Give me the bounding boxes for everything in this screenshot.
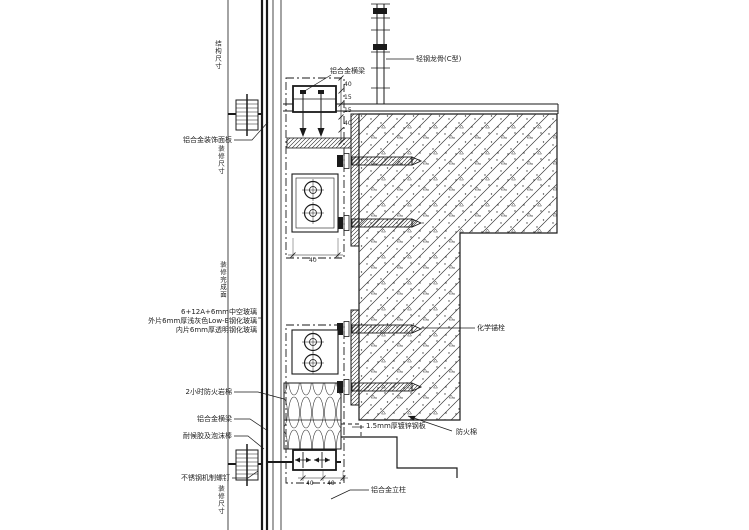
bottom-transom-bracket	[266, 450, 348, 481]
dim-top-2: 15	[344, 94, 352, 101]
steel-stud-channel	[371, 4, 390, 104]
label-mullion: 铝合金立柱	[371, 486, 406, 494]
dim-bottom-2: 40	[327, 480, 335, 487]
label-steel-stud: 轻钢龙骨(C型)	[416, 55, 461, 63]
label-fire-cotton: 防火棉	[456, 428, 477, 436]
label-ref-finish-dim-2: 装修尺寸	[216, 485, 223, 515]
rock-wool-insulation	[284, 383, 341, 449]
label-transom-bottom: 铝合金横梁	[197, 415, 232, 423]
galvanized-sheet-closure	[341, 424, 457, 478]
label-transom-top: 铝合金横梁	[330, 67, 365, 75]
drawing-sheet: 结构尺寸 装修尺寸 铝合金装饰面板 轻钢龙骨(C型) 铝合金横梁 6+12A+6…	[0, 0, 749, 530]
label-chemical-anchor: 化学锚栓	[477, 324, 505, 332]
leader-sealant	[234, 436, 264, 449]
dim-top-3: 15	[344, 107, 352, 114]
panel-clip-bottom	[228, 444, 262, 486]
label-glass-line-1: 6+12A+6mm中空玻璃	[181, 308, 257, 316]
dim-bracket: 40	[309, 257, 317, 264]
label-sealant: 耐候胶及泡沫棒	[183, 432, 232, 440]
mullion-bracket-upper	[288, 174, 343, 258]
leader-mullion	[331, 490, 369, 499]
detail-drawing-canvas	[0, 0, 749, 530]
insulation-strip	[287, 138, 351, 148]
label-machine-screw: 不锈钢机制螺钉	[181, 474, 230, 482]
label-ref-structure-dim: 结构尺寸	[213, 40, 220, 70]
label-galvanized-sheet: 1.5mm厚镀锌钢板	[366, 422, 426, 430]
dim-top-4: 40	[344, 120, 352, 127]
leader-rock-wool	[234, 392, 284, 399]
label-decorative-panel: 铝合金装饰面板	[183, 136, 232, 144]
label-glass-line-2: 外片6mm厚浅灰色Low-E钢化玻璃	[148, 317, 257, 325]
dim-bottom-1: 40	[306, 480, 314, 487]
label-glass-line-3: 内片6mm厚透明钢化玻璃	[176, 326, 257, 334]
curtain-wall-mullion	[262, 0, 281, 530]
dim-top-1: 40	[344, 81, 352, 88]
label-ref-finish-dim: 装修尺寸	[216, 145, 223, 175]
label-rock-wool: 2小时防火岩棉	[186, 388, 232, 396]
label-ref-finish-face: 装修完成面	[218, 261, 225, 299]
panel-clip-top	[228, 94, 262, 136]
